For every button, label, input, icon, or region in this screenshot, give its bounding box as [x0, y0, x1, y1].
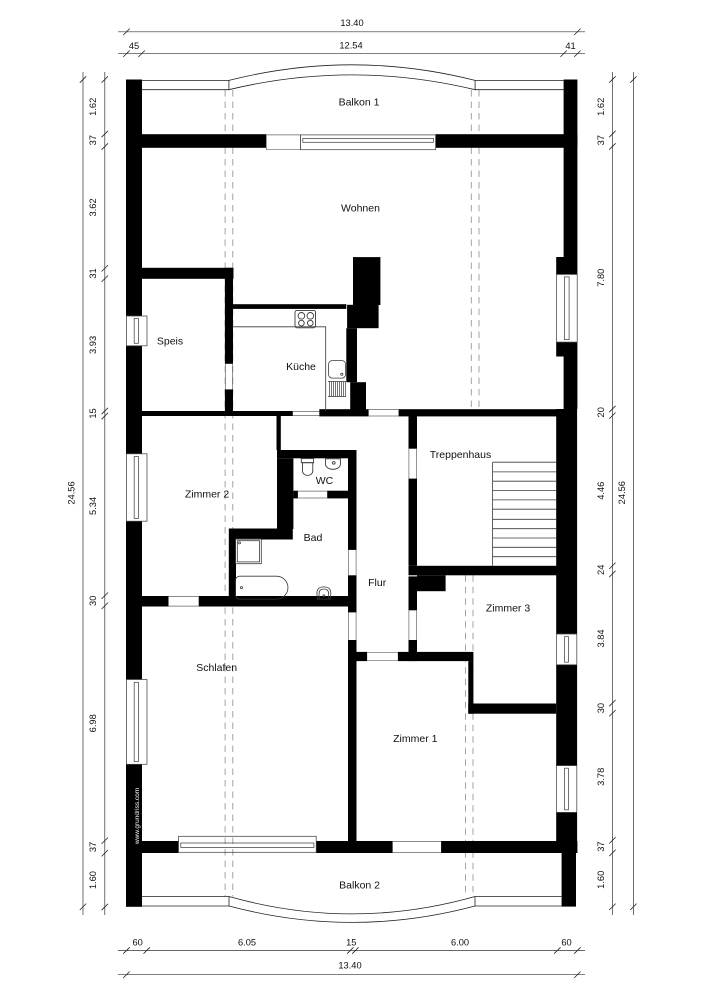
svg-text:Balkon 2: Balkon 2	[339, 880, 380, 892]
svg-text:20: 20	[596, 407, 606, 417]
svg-text:1.60: 1.60	[88, 871, 98, 889]
svg-text:12.54: 12.54	[339, 41, 362, 51]
svg-text:30: 30	[596, 703, 606, 713]
svg-text:Küche: Küche	[286, 361, 316, 373]
svg-text:37: 37	[596, 135, 606, 145]
svg-text:13.40: 13.40	[338, 961, 361, 971]
svg-text:WC: WC	[316, 475, 334, 487]
svg-text:24: 24	[596, 565, 606, 575]
svg-text:6.00: 6.00	[451, 938, 469, 948]
svg-text:Wohnen: Wohnen	[341, 203, 380, 215]
svg-text:37: 37	[88, 135, 98, 145]
svg-text:37: 37	[596, 841, 606, 851]
svg-text:1.62: 1.62	[88, 98, 98, 116]
svg-text:Zimmer 1: Zimmer 1	[393, 733, 437, 745]
svg-text:1.60: 1.60	[596, 871, 606, 889]
svg-text:3.84: 3.84	[596, 629, 606, 647]
svg-text:15: 15	[88, 408, 98, 418]
svg-text:Treppenhaus: Treppenhaus	[430, 449, 492, 461]
svg-text:3.78: 3.78	[596, 768, 606, 786]
svg-text:www.grundriss.com: www.grundriss.com	[134, 788, 141, 845]
svg-text:Flur: Flur	[368, 577, 387, 589]
svg-text:7.80: 7.80	[596, 269, 606, 287]
svg-text:3.62: 3.62	[88, 198, 98, 216]
svg-text:60: 60	[133, 938, 143, 948]
svg-text:Balkon 1: Balkon 1	[339, 97, 380, 109]
svg-text:31: 31	[88, 268, 98, 278]
svg-text:41: 41	[565, 41, 575, 51]
svg-text:45: 45	[129, 41, 139, 51]
svg-text:60: 60	[561, 938, 571, 948]
svg-text:5.34: 5.34	[88, 497, 98, 515]
svg-text:1.62: 1.62	[596, 98, 606, 116]
svg-text:13.40: 13.40	[340, 18, 363, 28]
svg-text:6.05: 6.05	[238, 938, 256, 948]
svg-text:37: 37	[88, 842, 98, 852]
svg-text:Speis: Speis	[157, 336, 183, 348]
svg-text:30: 30	[88, 596, 98, 606]
svg-text:24.56: 24.56	[67, 481, 77, 504]
svg-text:Bad: Bad	[304, 532, 323, 544]
svg-text:Zimmer 2: Zimmer 2	[185, 489, 229, 501]
svg-text:Zimmer 3: Zimmer 3	[486, 603, 530, 615]
svg-text:Schlafen: Schlafen	[196, 662, 237, 674]
svg-text:24.56: 24.56	[617, 481, 627, 504]
svg-text:15: 15	[346, 938, 356, 948]
svg-text:6.98: 6.98	[88, 714, 98, 732]
svg-text:4.46: 4.46	[596, 482, 606, 500]
svg-text:3.93: 3.93	[88, 336, 98, 354]
